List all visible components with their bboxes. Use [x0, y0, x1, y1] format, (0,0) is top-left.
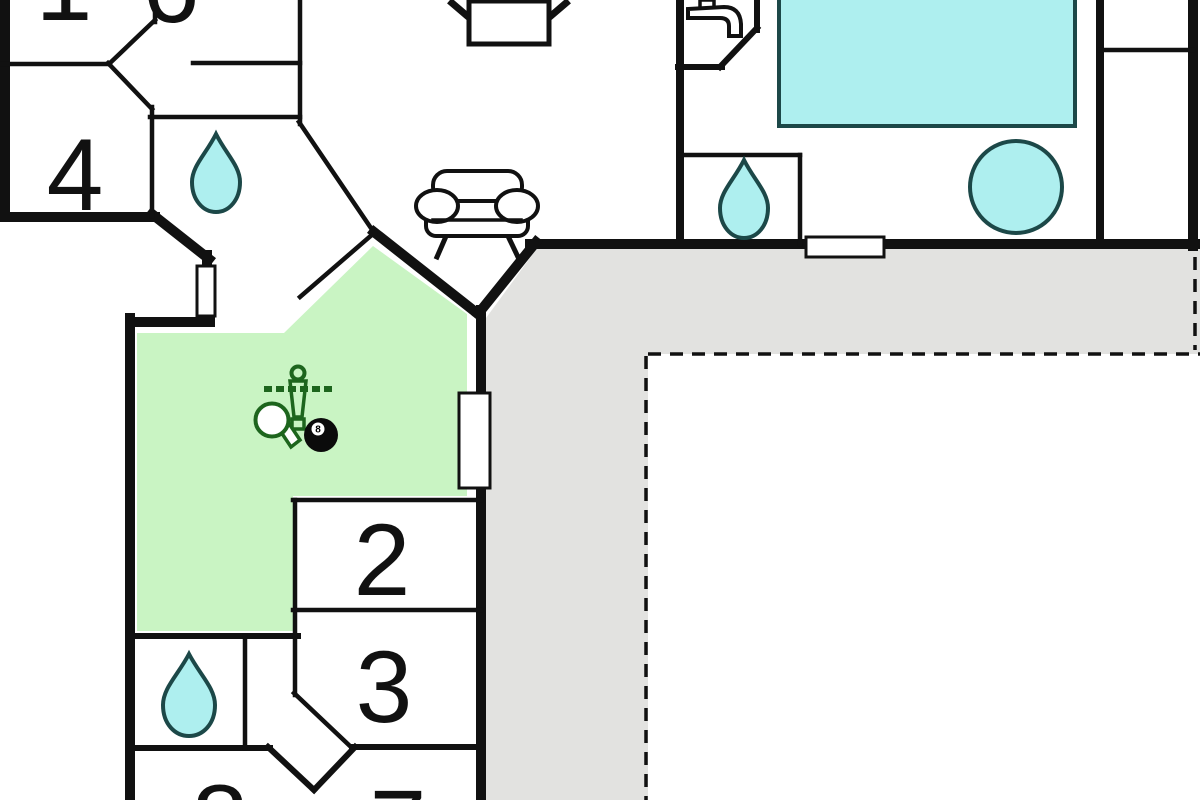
billiard-ball-number: 8 — [315, 425, 321, 436]
sofa-icon — [416, 171, 538, 257]
terrace-area — [486, 247, 1200, 800]
game-room-area — [137, 246, 467, 631]
floor-plan-image: 8 1 6 4 2 3 8 7 — [0, 0, 1200, 800]
room-number-1: 1 — [36, 0, 93, 42]
window-pool-room — [806, 237, 884, 257]
door-left — [197, 266, 215, 316]
door-game-room — [459, 393, 490, 488]
hot-tub — [970, 141, 1062, 233]
room-number-7: 7 — [370, 769, 427, 800]
room-number-8: 8 — [192, 764, 249, 800]
floor-plan-page: 8 1 6 4 2 3 8 7 — [0, 0, 1200, 800]
water-drop-icon — [163, 654, 215, 736]
water-drop-icon — [720, 160, 768, 238]
faucet-icon — [688, 0, 741, 36]
dining-table-icon — [452, 1, 566, 44]
water-drop-icon — [192, 134, 240, 212]
room-number-2: 2 — [354, 503, 411, 617]
swimming-pool — [779, 0, 1075, 126]
room-number-6: 6 — [143, 0, 200, 44]
billiard-ball-icon: 8 — [304, 418, 338, 452]
room-number-3: 3 — [356, 630, 413, 744]
room-number-4: 4 — [47, 118, 104, 232]
